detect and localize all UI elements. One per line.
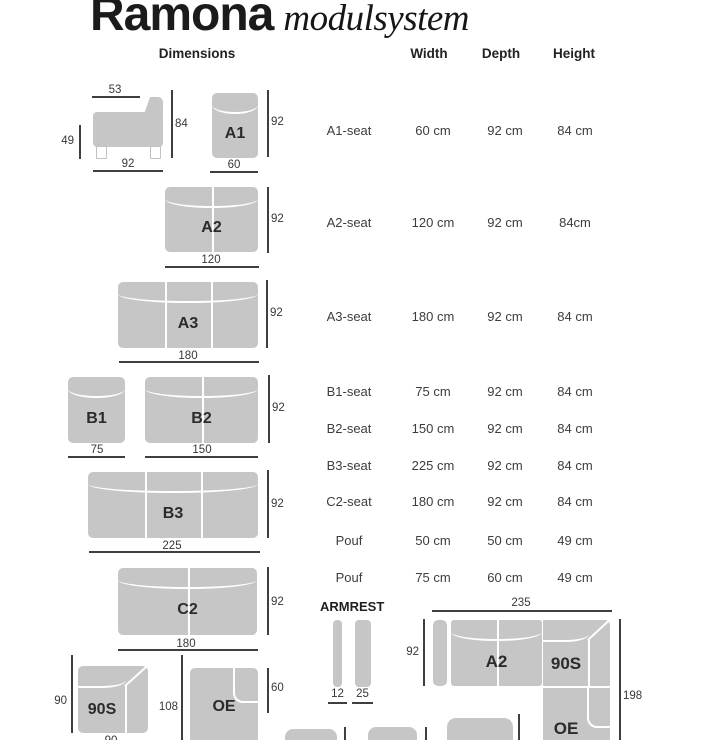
module-label: 90S [543,640,589,686]
a2-depth-label: 92 [271,213,293,225]
module-b3: B3 [88,472,258,538]
armrest-bar-narrow [333,620,342,687]
b3-depth-label: 92 [271,498,293,510]
armrest-bar-wide [355,620,371,687]
sideview-height-label: 84 [175,118,197,130]
module-label: A2 [451,637,542,686]
sofa-leg [150,146,161,159]
dim-line [93,170,163,172]
dim-line [267,567,269,635]
combo-right-label: 198 [623,690,651,702]
b2-width-label: 150 [188,444,216,456]
dim-line [267,187,269,253]
dim-line [210,171,258,173]
dim-line [425,727,427,740]
90s-side-label: 90 [46,695,67,707]
module-label: A1 [212,110,258,158]
combo-module-a2: A2 [451,620,542,686]
module-label: OE [543,712,589,740]
row-height: 84 cm [525,495,625,509]
col-header-height: Height [534,47,614,61]
module-label: C2 [118,585,257,635]
dim-line [619,619,621,740]
col-header-dimensions: Dimensions [147,47,247,61]
corner-miter-line [124,665,148,687]
row-height: 49 cm [525,534,625,548]
dim-line [165,266,259,268]
sofa-leg [96,146,107,159]
module-label: A3 [118,299,258,348]
module-label: B1 [68,394,125,443]
dim-line [89,551,260,553]
combo-module-90s: 90S [543,620,610,686]
module-label: OE [190,668,258,740]
b2-depth-label: 92 [272,402,294,414]
dim-line [92,96,140,98]
module-a2: A2 [165,187,258,252]
brand-subtitle: modulsystem [283,0,469,39]
dim-line [344,727,346,740]
row-height: 84cm [525,216,625,230]
sofa-body-profile [93,112,163,147]
row-height: 84 cm [525,310,625,324]
dim-line [352,702,373,704]
combo-module-oe: OE [543,688,610,740]
dim-line [118,649,258,651]
dim-line [68,456,125,458]
module-label: 90S [78,686,126,733]
module-90s: 90S [78,666,148,733]
sideview-seat-depth-label: 53 [103,84,127,96]
90s-width-label: 90 [100,735,122,740]
module-label: A2 [165,204,258,252]
module-c2: C2 [118,568,257,635]
dim-line [267,668,269,713]
module-b1: B1 [68,377,125,443]
dim-line [268,375,270,443]
col-header-width: Width [389,47,469,61]
c2-depth-label: 92 [271,596,293,608]
dim-line [71,655,73,733]
dim-line [432,610,612,612]
dim-line [181,655,183,740]
combo-armrest-strip [433,620,447,686]
armrest-width-label: 25 [352,688,373,700]
armrest-strip-line [587,688,610,728]
a3-depth-label: 92 [270,307,292,319]
pouf-shape [447,718,513,740]
module-label: B2 [145,394,258,443]
row-height: 84 cm [525,124,625,138]
pouf-shape [368,727,417,740]
dim-line [328,702,347,704]
module-a3: A3 [118,282,258,348]
dim-line [266,280,268,348]
pouf-shape [285,729,337,740]
module-b2: B2 [145,377,258,443]
dim-line [518,714,520,740]
brand-name: Ramona [90,0,273,41]
col-header-depth: Depth [461,47,541,61]
combo-top-label: 235 [507,597,535,609]
module-a1: A1 [212,93,258,158]
armrest-section-title: ARMREST [320,600,384,614]
back-cushion-line [78,666,126,688]
row-height: 49 cm [525,571,625,585]
a1-depth-label: 92 [271,116,293,128]
a1-width-label: 60 [222,159,246,171]
armrest-width-label: 12 [328,688,347,700]
row-height: 84 cm [525,459,625,473]
b1-width-label: 75 [85,444,109,456]
oe-arm-height-label: 60 [271,682,293,694]
oe-side-label: 108 [152,701,178,713]
corner-miter-line [587,619,610,640]
dim-line [145,456,258,458]
page-title: Ramonamodulsystem [90,0,469,42]
dim-line [119,361,259,363]
sideview-depth-label: 92 [116,158,140,170]
a2-width-label: 120 [197,254,225,266]
dim-line [267,90,269,157]
sideview-seat-height-label: 49 [54,135,74,147]
dim-line [171,90,173,158]
row-height: 84 cm [525,422,625,436]
dim-line [79,125,81,159]
row-height: 84 cm [525,385,625,399]
catalog-page: Ramonamodulsystem Dimensions Width Depth… [0,0,726,740]
dim-line [267,470,269,538]
back-cushion-line [543,620,589,642]
dim-line [423,619,425,686]
combo-left-label: 92 [399,646,419,658]
module-label: B3 [88,489,258,538]
module-oe: OE [190,668,258,740]
